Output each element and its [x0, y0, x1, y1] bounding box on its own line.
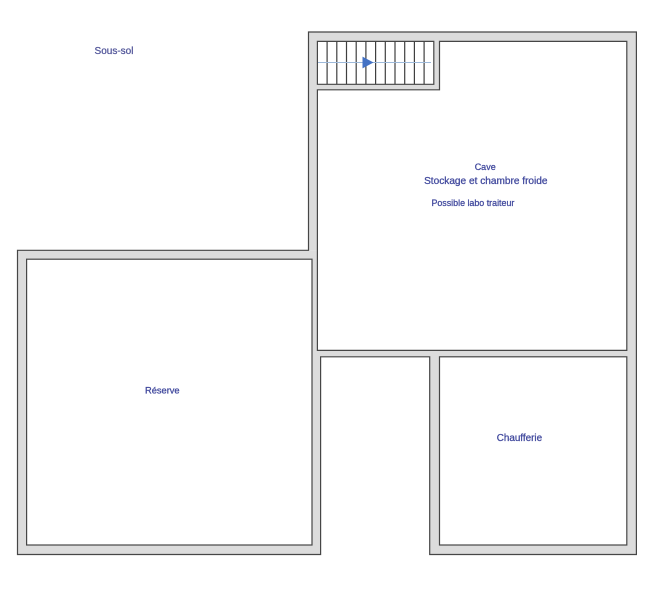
svg-text:Réserve: Réserve: [145, 386, 180, 396]
svg-text:Possible labo traiteur: Possible labo traiteur: [431, 198, 514, 208]
svg-text:Sous-sol: Sous-sol: [95, 46, 134, 57]
svg-text:Cave: Cave: [475, 162, 496, 172]
svg-text:Stockage et chambre froide: Stockage et chambre froide: [424, 176, 548, 187]
svg-text:Chaufferie: Chaufferie: [497, 433, 543, 444]
